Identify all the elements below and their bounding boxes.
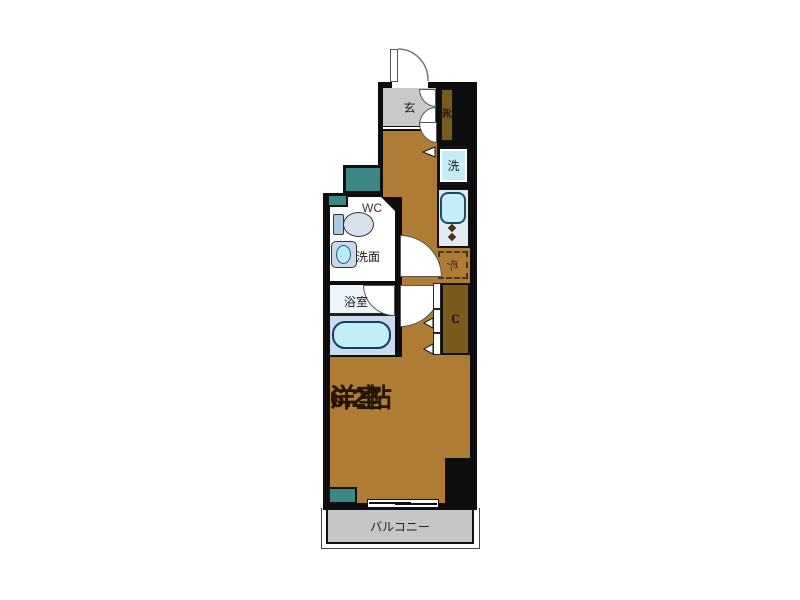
balcony-label: バルコニー	[370, 518, 430, 535]
closet-label-char2: L	[452, 312, 459, 326]
bathroom-label: 浴室	[344, 293, 368, 310]
washbasin-icon	[331, 241, 357, 268]
corner-pillar	[445, 458, 477, 508]
shoe-cabinet-label-char2: 入	[442, 109, 452, 121]
washbasin-label: 洗面	[356, 248, 380, 265]
refrigerator-label: 冷	[444, 255, 462, 274]
entrance-label: 玄	[403, 99, 415, 116]
closet: C L	[441, 283, 470, 355]
entrance-door-swing-arc	[397, 49, 428, 82]
window	[367, 499, 439, 508]
washroom: WC 洗面	[330, 197, 395, 281]
bathtub-icon	[332, 321, 391, 349]
washbasin-bowl-icon	[336, 245, 351, 264]
bathroom: 浴室	[330, 285, 395, 355]
washing-machine-box: 洗	[437, 146, 470, 185]
washing-machine-label: 洗	[447, 157, 459, 174]
kitchen-sink-icon	[440, 192, 466, 224]
shoe-cabinet: 靴 入	[440, 88, 454, 142]
refrigerator-space: 冷	[438, 251, 468, 279]
floorplan-canvas: 玄 靴 入 洗 冷 WC 洗面 浴室	[0, 0, 800, 600]
toilet-bowl-icon	[343, 212, 374, 237]
main-room-size: 6.2帖	[330, 384, 392, 413]
pipe-space-bottom	[328, 487, 357, 504]
balcony: バルコニー	[326, 508, 474, 544]
closet-door-divider	[434, 308, 440, 310]
washer-door-arrow-icon	[422, 146, 436, 158]
closet-door-arrow-icon	[423, 317, 434, 329]
closet-door-arrow-icon	[423, 343, 434, 355]
closet-door-divider	[434, 332, 440, 334]
pipe-space-small	[327, 194, 348, 207]
window-pane-line	[395, 503, 437, 505]
closet-sliding-door	[433, 283, 441, 355]
pipe-space-top	[343, 165, 383, 194]
